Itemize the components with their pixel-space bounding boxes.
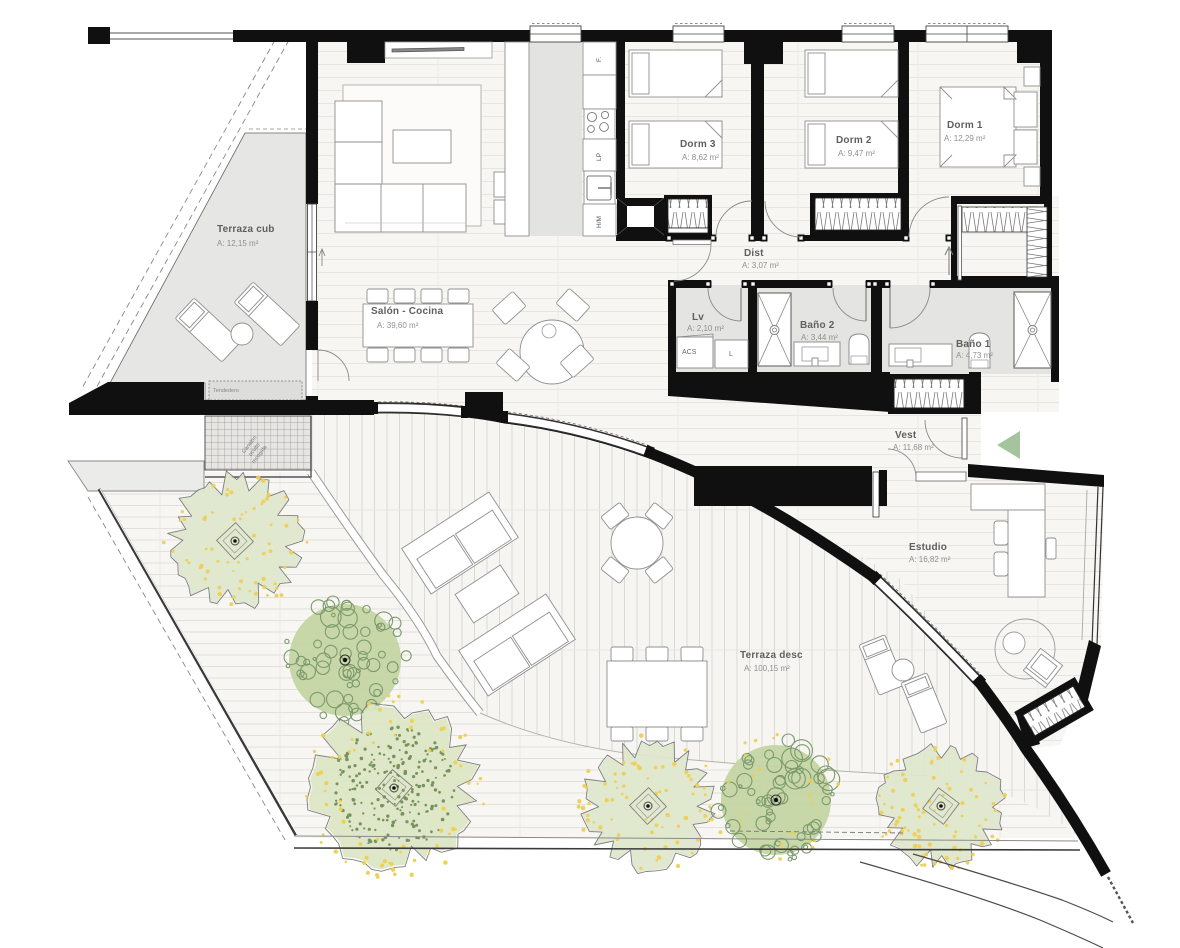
svg-text:F.: F.	[596, 57, 603, 62]
svg-text:A: 100,15 m²: A: 100,15 m²	[744, 664, 790, 673]
svg-text:Salón - Cocina: Salón - Cocina	[371, 306, 443, 317]
svg-text:Terraza cub: Terraza cub	[217, 224, 275, 235]
svg-text:Vest: Vest	[895, 430, 917, 441]
svg-text:A: 8,62 m²: A: 8,62 m²	[682, 153, 719, 162]
svg-text:LP: LP	[596, 153, 603, 161]
svg-text:Lv: Lv	[692, 312, 704, 323]
svg-text:Tendedero: Tendedero	[213, 388, 239, 394]
svg-text:Baño 1: Baño 1	[956, 339, 991, 350]
svg-text:A: 3,44 m²: A: 3,44 m²	[801, 333, 838, 342]
svg-text:A: 2,10 m²: A: 2,10 m²	[687, 324, 724, 333]
svg-text:Dorm 3: Dorm 3	[680, 139, 716, 150]
svg-text:A: 11,68 m²: A: 11,68 m²	[893, 443, 934, 452]
svg-text:A: 39,60 m²: A: 39,60 m²	[377, 321, 419, 330]
svg-text:Baño 2: Baño 2	[800, 320, 835, 331]
svg-text:Dorm 1: Dorm 1	[947, 120, 983, 131]
svg-text:A: 16,82 m²: A: 16,82 m²	[909, 555, 951, 564]
svg-text:A: 12,15 m²: A: 12,15 m²	[217, 239, 259, 248]
svg-text:A: 4,73 m²: A: 4,73 m²	[956, 351, 993, 360]
svg-text:Terraza desc: Terraza desc	[740, 650, 803, 661]
svg-text:Estudio: Estudio	[909, 542, 947, 553]
svg-text:Dorm 2: Dorm 2	[836, 135, 872, 146]
svg-text:H/M: H/M	[596, 216, 603, 228]
svg-text:A: 12,29 m²: A: 12,29 m²	[944, 134, 986, 143]
svg-text:Dist: Dist	[744, 248, 764, 259]
svg-text:ACS: ACS	[682, 349, 697, 356]
svg-text:A: 3,07 m²: A: 3,07 m²	[742, 261, 779, 270]
svg-text:L: L	[729, 351, 733, 358]
svg-text:A: 9,47 m²: A: 9,47 m²	[838, 149, 875, 158]
